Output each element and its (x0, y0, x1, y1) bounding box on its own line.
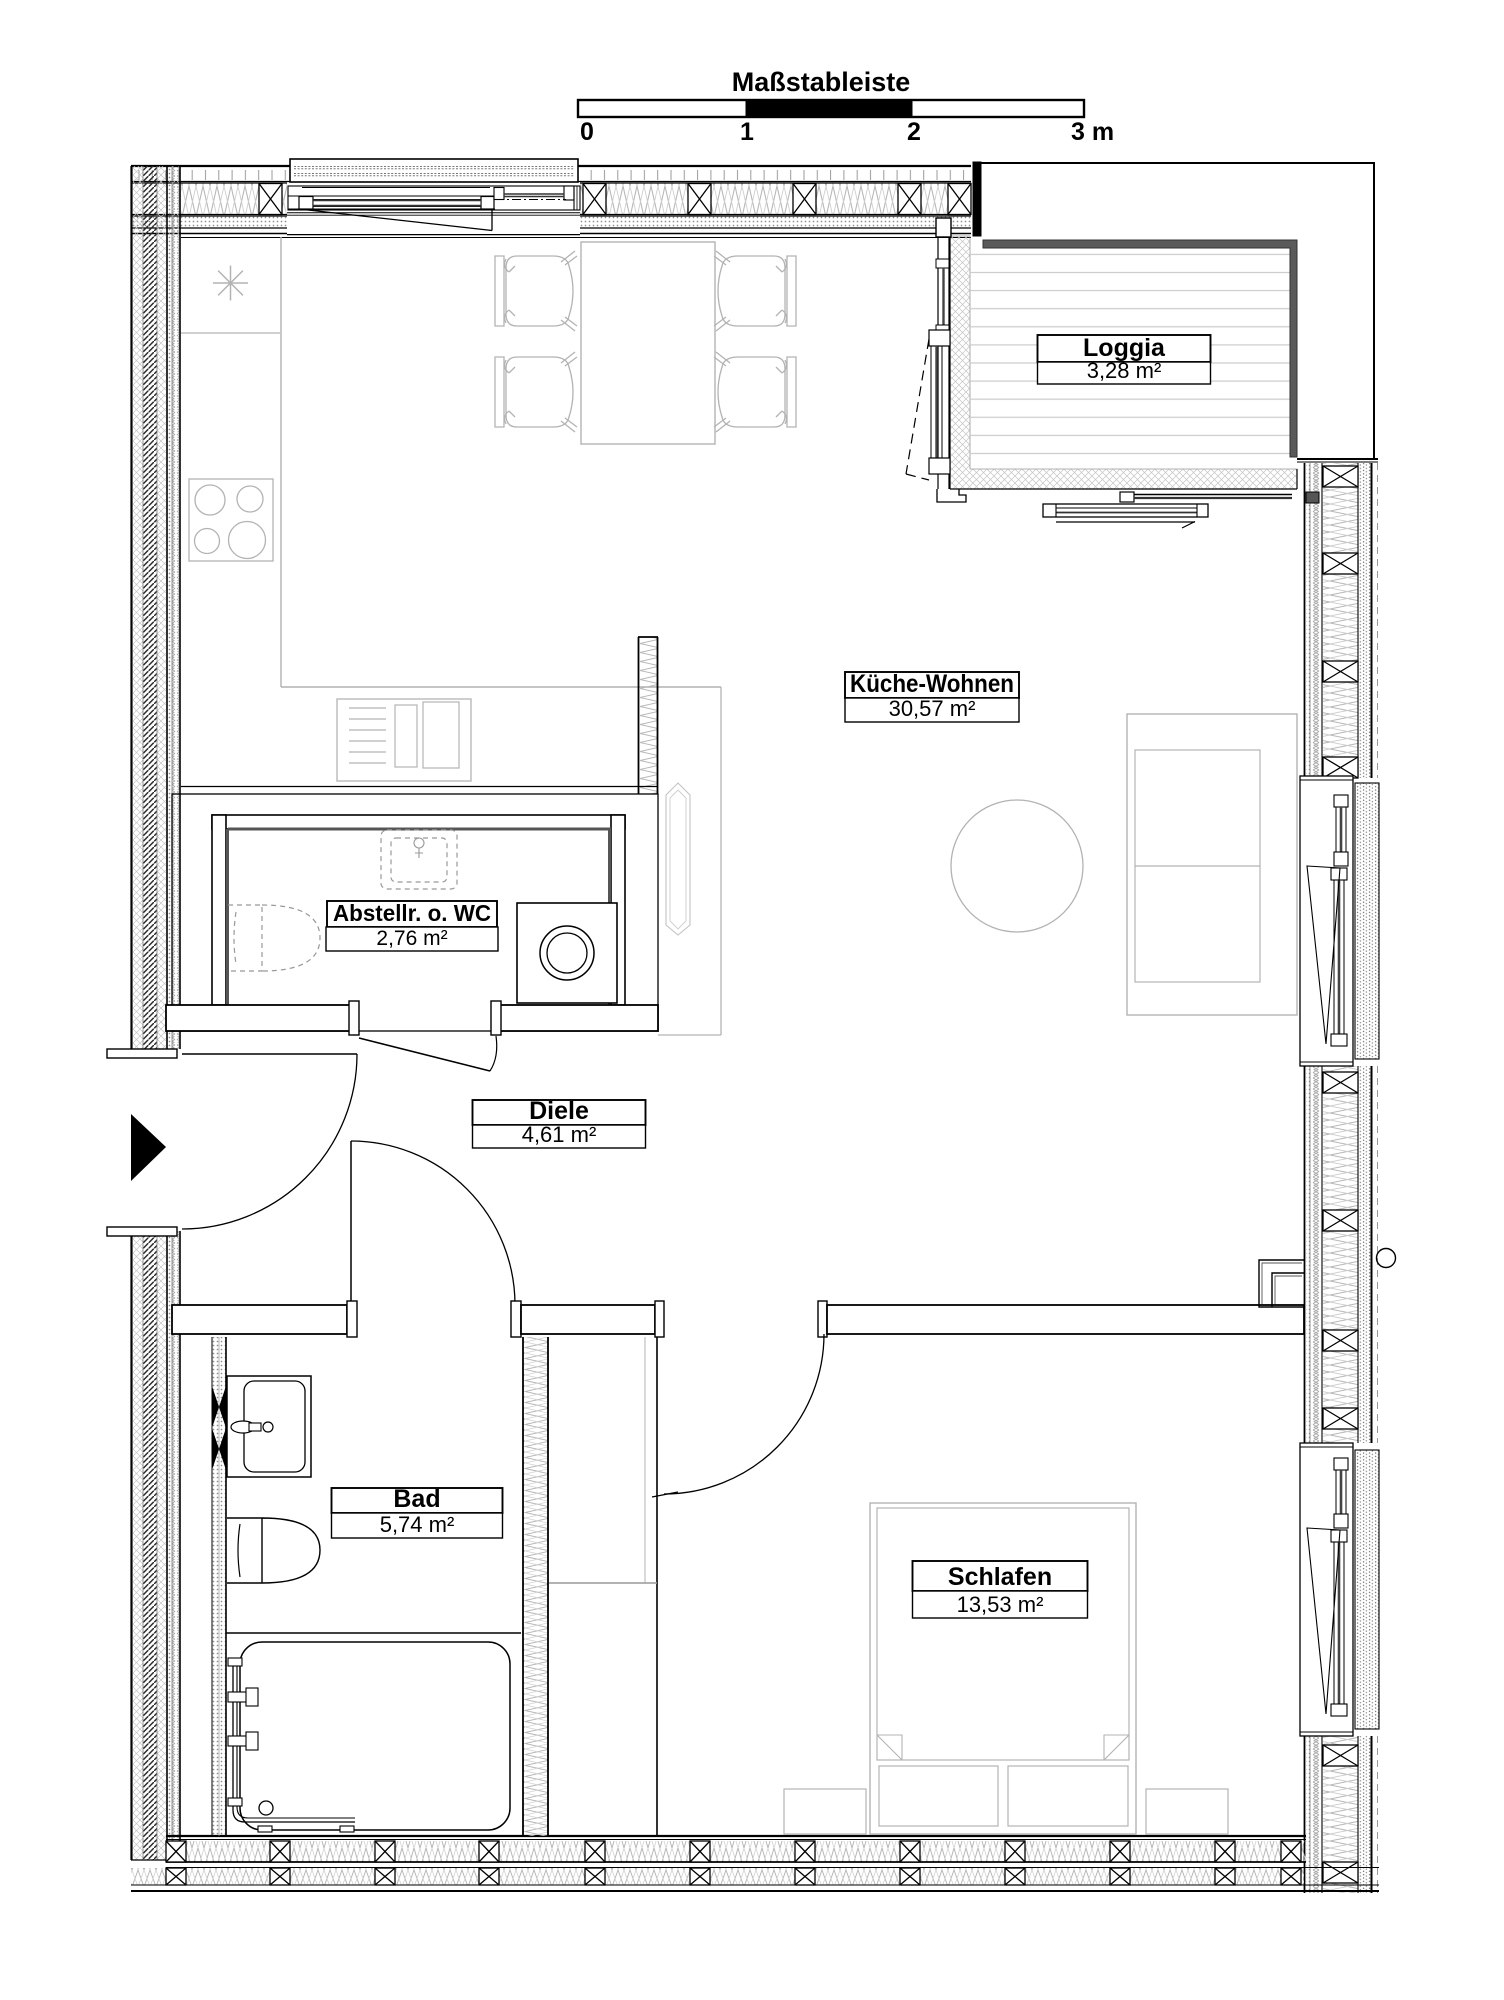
svg-text:Abstellr. o. WC: Abstellr. o. WC (333, 900, 491, 926)
svg-text:13,53 m²: 13,53 m² (957, 1592, 1044, 1617)
svg-text:2,76 m²: 2,76 m² (376, 927, 447, 950)
svg-text:Maßstableiste: Maßstableiste (732, 67, 911, 97)
svg-text:0: 0 (580, 118, 594, 146)
svg-text:30,57 m²: 30,57 m² (889, 696, 976, 721)
svg-text:Bad: Bad (393, 1485, 440, 1513)
svg-text:Küche-Wohnen: Küche-Wohnen (850, 670, 1014, 698)
svg-text:1: 1 (740, 118, 754, 146)
svg-text:4,61 m²: 4,61 m² (522, 1122, 597, 1147)
svg-text:Diele: Diele (529, 1097, 589, 1125)
svg-text:2: 2 (907, 118, 921, 146)
svg-text:3 m: 3 m (1071, 118, 1114, 146)
svg-text:5,74 m²: 5,74 m² (380, 1512, 455, 1537)
svg-text:3,28 m²: 3,28 m² (1087, 358, 1162, 383)
svg-text:Schlafen: Schlafen (948, 1563, 1052, 1591)
